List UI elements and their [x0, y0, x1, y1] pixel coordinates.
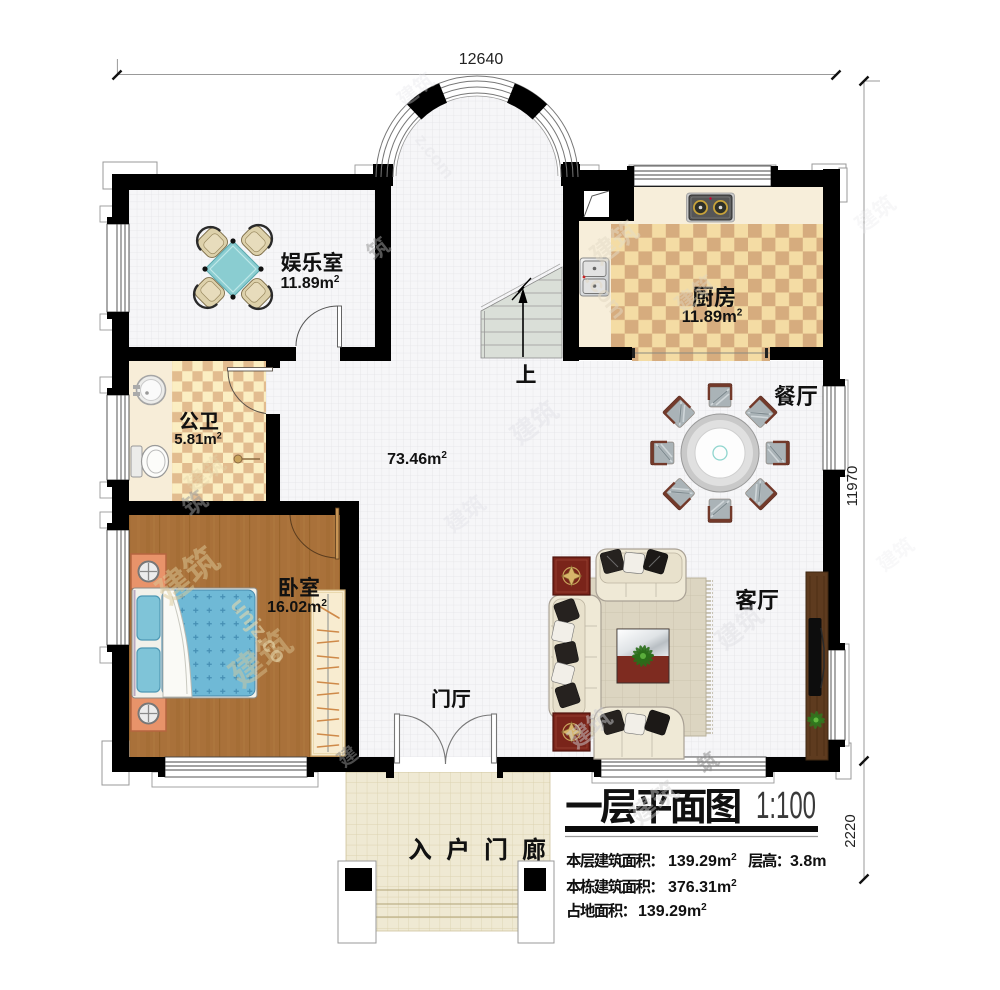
svg-text:11970: 11970: [844, 466, 861, 507]
svg-text:73.46m2: 73.46m2: [387, 450, 447, 468]
svg-text:卧室: 卧室: [278, 572, 320, 602]
svg-text:12640: 12640: [459, 51, 504, 68]
svg-text:139.29m2: 139.29m2: [638, 902, 707, 920]
svg-text:11.89m2: 11.89m2: [281, 274, 340, 292]
svg-text:占地面积：: 占地面积：: [566, 899, 636, 921]
svg-text:139.29m2: 139.29m2: [668, 852, 737, 870]
svg-text:本层建筑面积：: 本层建筑面积：: [566, 849, 663, 871]
svg-text:入户门廊: 入户门廊: [408, 830, 560, 865]
svg-text:376.31m2: 376.31m2: [668, 878, 737, 896]
svg-text:2220: 2220: [842, 814, 859, 847]
svg-text:层高：: 层高：: [748, 849, 790, 871]
svg-text:上: 上: [516, 359, 537, 389]
svg-text:1:100: 1:100: [756, 785, 816, 827]
svg-text:门厅: 门厅: [431, 683, 471, 712]
svg-text:公卫: 公卫: [179, 405, 219, 434]
svg-text:餐厅: 餐厅: [774, 379, 818, 411]
svg-text:本栋建筑面积：: 本栋建筑面积：: [566, 875, 663, 897]
svg-text:16.02m2: 16.02m2: [267, 598, 327, 616]
svg-text:娱乐室: 娱乐室: [281, 247, 344, 277]
svg-text:5.81m2: 5.81m2: [174, 430, 222, 448]
svg-text:3.8m: 3.8m: [790, 853, 826, 870]
